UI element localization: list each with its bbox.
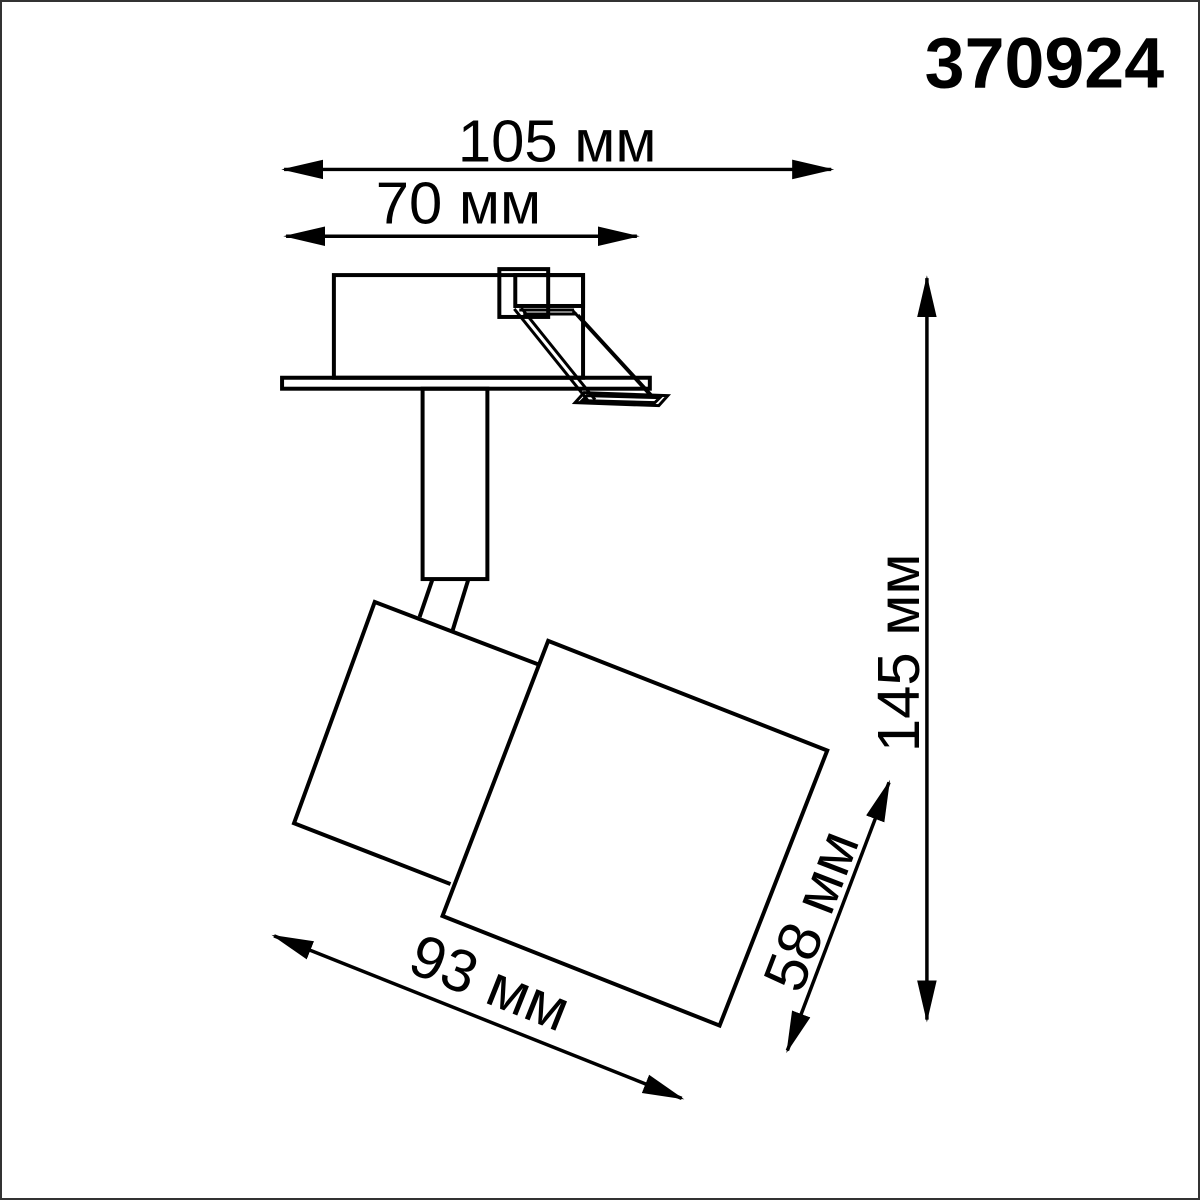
dimension-label-overall-height: 145 мм	[865, 554, 932, 753]
product-article-number: 370924	[925, 24, 1165, 104]
joint-edge	[420, 579, 433, 617]
dimension-overall-height: 145 мм	[865, 278, 932, 1020]
dimension-cutout-width: 70 мм	[286, 169, 637, 236]
housing-body	[334, 275, 583, 378]
dimension-label-cutout-width: 70 мм	[376, 169, 541, 236]
spotlight-head	[294, 602, 827, 1026]
drawing-canvas: 105 мм 70 мм 145 мм 93 мм 58 мм 370924	[0, 0, 1200, 1200]
joint-edge	[452, 579, 468, 631]
dimension-label-head-width: 58 мм	[750, 821, 872, 999]
dimension-label-overall-width: 105 мм	[458, 107, 657, 174]
recessed-housing	[334, 269, 583, 378]
dimension-overall-width: 105 мм	[284, 107, 831, 174]
clip-arm-right	[578, 315, 654, 398]
spring-clip	[514, 308, 667, 406]
dimension-label-head-length: 93 мм	[401, 921, 579, 1044]
dimension-head-length: 93 мм	[274, 921, 682, 1098]
head-rear-section	[294, 602, 539, 884]
dimension-head-width: 58 мм	[750, 782, 889, 1050]
stem-tube	[423, 389, 488, 579]
stem	[423, 389, 488, 579]
